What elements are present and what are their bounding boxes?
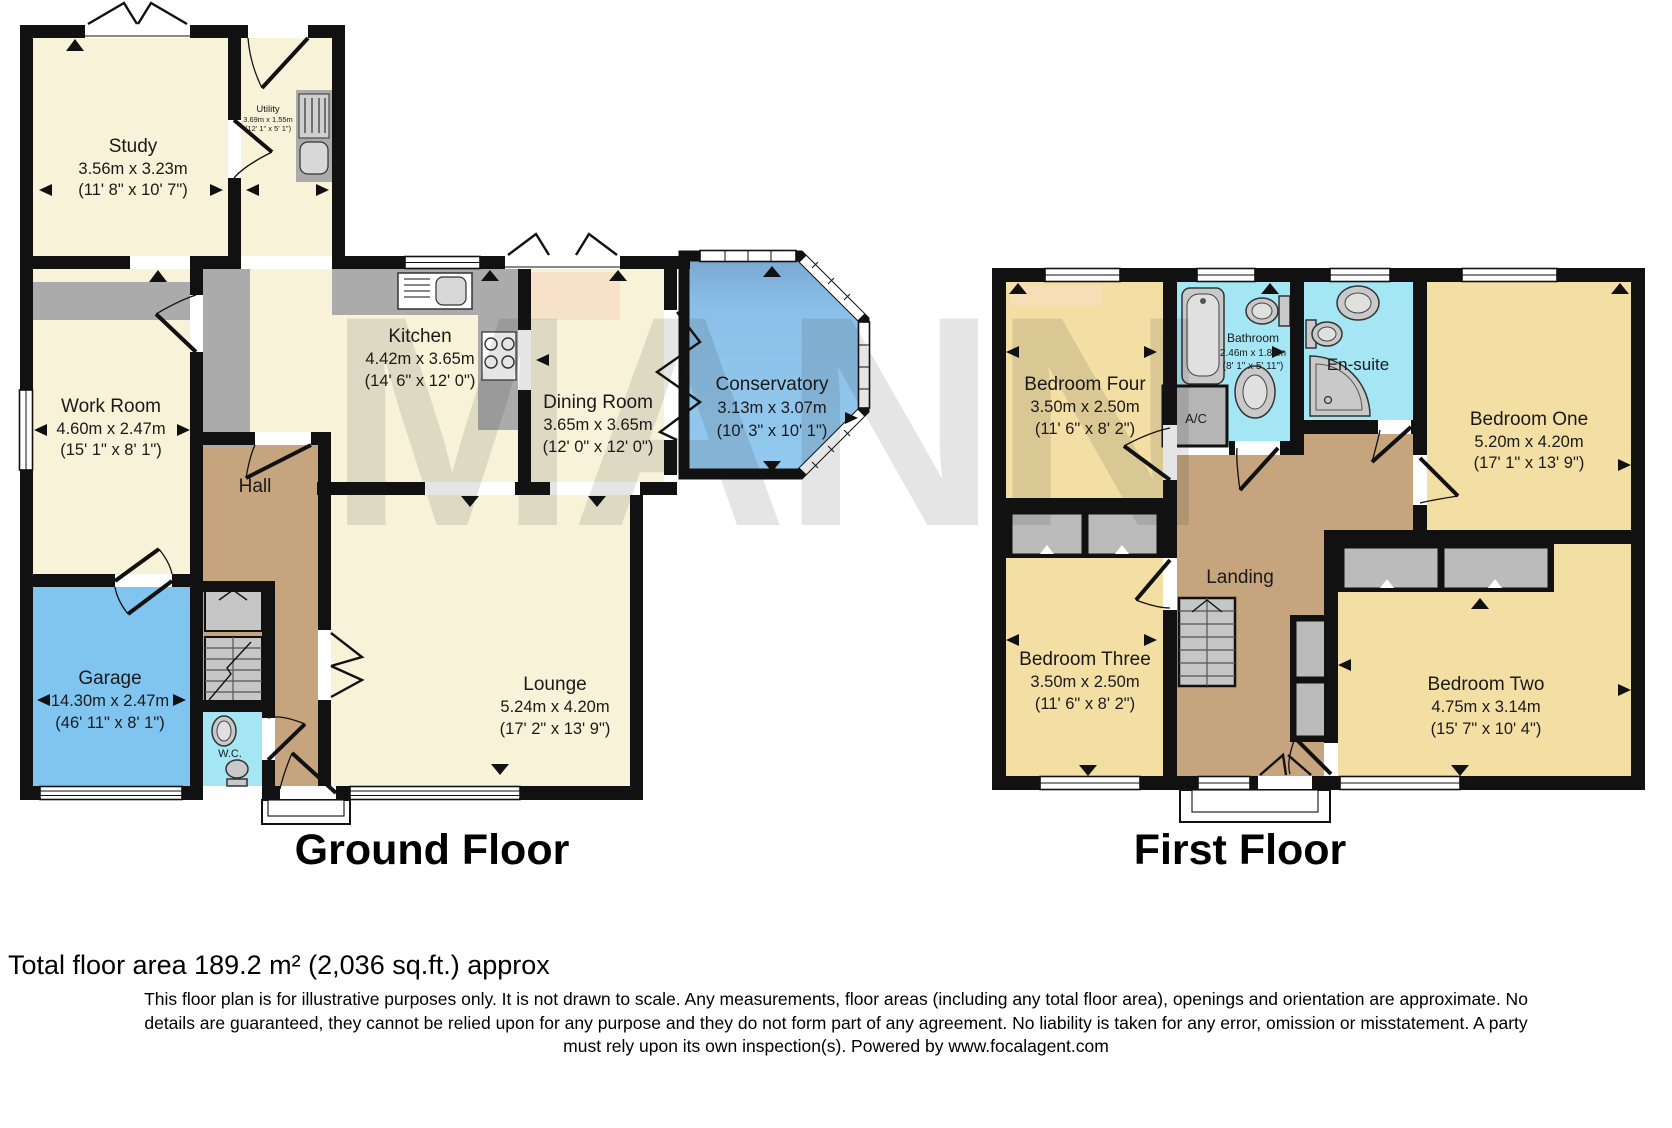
bedroom-two-label: Bedroom Two xyxy=(1428,674,1545,695)
garage-door xyxy=(40,787,182,800)
svg-text:(15' 7" x 10' 4"): (15' 7" x 10' 4") xyxy=(1431,720,1542,738)
svg-text:5.24m x 4.20m: 5.24m x 4.20m xyxy=(500,698,609,716)
svg-text:(17' 2" x 13' 9"): (17' 2" x 13' 9") xyxy=(500,720,611,738)
svg-text:4.75m x 3.14m: 4.75m x 3.14m xyxy=(1431,698,1540,716)
lounge-window xyxy=(350,787,520,800)
wc-label: W.C. xyxy=(218,748,242,760)
ground-floor-title: Ground Floor xyxy=(222,826,642,875)
work-room-counter xyxy=(33,282,190,320)
landing-label: Landing xyxy=(1206,567,1274,588)
disclaimer: This floor plan is for illustrative purp… xyxy=(0,988,1672,1059)
svg-text:3.69m x 1.55m: 3.69m x 1.55m xyxy=(243,115,293,124)
ensuite-sink-icon xyxy=(1337,286,1379,320)
wc-toilet-icon xyxy=(226,760,248,786)
disclaimer-line-3: must rely upon its own inspection(s). Po… xyxy=(0,1035,1672,1059)
disclaimer-line-2: details are guaranteed, they cannot be r… xyxy=(0,1012,1672,1036)
garage-label: Garage xyxy=(78,668,141,689)
svg-text:3.50m x 2.50m: 3.50m x 2.50m xyxy=(1030,673,1139,691)
gf-stairs xyxy=(205,589,262,705)
total-floor-area: Total floor area 189.2 m² (2,036 sq.ft.)… xyxy=(8,950,550,981)
floor-plan-canvas: Study 3.56m x 3.23m (11' 8" x 10' 7") Ut… xyxy=(0,0,1672,945)
kitchen-counter-left xyxy=(203,269,250,447)
study-label: Study xyxy=(109,136,158,157)
svg-text:4.60m x 2.47m: 4.60m x 2.47m xyxy=(56,420,165,438)
ensuite-toilet-icon xyxy=(1306,320,1342,348)
bedroom-one-label: Bedroom One xyxy=(1470,409,1588,430)
svg-text:2.46m x 1.81m: 2.46m x 1.81m xyxy=(1220,348,1286,359)
svg-text:(17' 1" x 13' 9"): (17' 1" x 13' 9") xyxy=(1474,454,1585,472)
disclaimer-line-1: This floor plan is for illustrative purp… xyxy=(0,988,1672,1012)
work-room-label: Work Room xyxy=(61,396,161,417)
svg-text:(46' 11" x 8' 1"): (46' 11" x 8' 1") xyxy=(55,714,164,732)
utility-appliances xyxy=(296,90,332,182)
svg-text:(11' 6" x 8' 2"): (11' 6" x 8' 2") xyxy=(1035,695,1135,713)
bathroom-toilet-icon xyxy=(1246,296,1290,326)
bathroom-label: Bathroom xyxy=(1227,331,1279,345)
svg-text:(11' 8" x 10' 7"): (11' 8" x 10' 7") xyxy=(78,181,187,199)
svg-text:3.56m x 3.23m: 3.56m x 3.23m xyxy=(78,160,187,178)
watermark-text: MANN xyxy=(327,253,1203,589)
first-floor-title: First Floor xyxy=(1030,826,1450,875)
bedroom-three-label: Bedroom Three xyxy=(1019,649,1151,670)
hall-label: Hall xyxy=(239,476,272,497)
ff-stairs xyxy=(1179,598,1235,686)
ff-porch xyxy=(1180,790,1330,822)
gf-porch xyxy=(262,800,350,824)
utility-label: Utility xyxy=(256,104,279,115)
study-room xyxy=(33,38,332,256)
svg-text:(8' 1" x 5' 11"): (8' 1" x 5' 11") xyxy=(1223,361,1284,372)
svg-text:14.30m x 2.47m: 14.30m x 2.47m xyxy=(51,692,169,710)
svg-text:(12' 1" x 5' 1"): (12' 1" x 5' 1") xyxy=(245,124,292,133)
svg-text:5.20m x 4.20m: 5.20m x 4.20m xyxy=(1474,433,1583,451)
bathroom-sink-icon xyxy=(1235,366,1275,418)
lounge-label: Lounge xyxy=(523,674,586,695)
en-suite-label: En-suite xyxy=(1327,355,1389,374)
svg-text:(15' 1" x 8' 1"): (15' 1" x 8' 1") xyxy=(60,441,161,459)
